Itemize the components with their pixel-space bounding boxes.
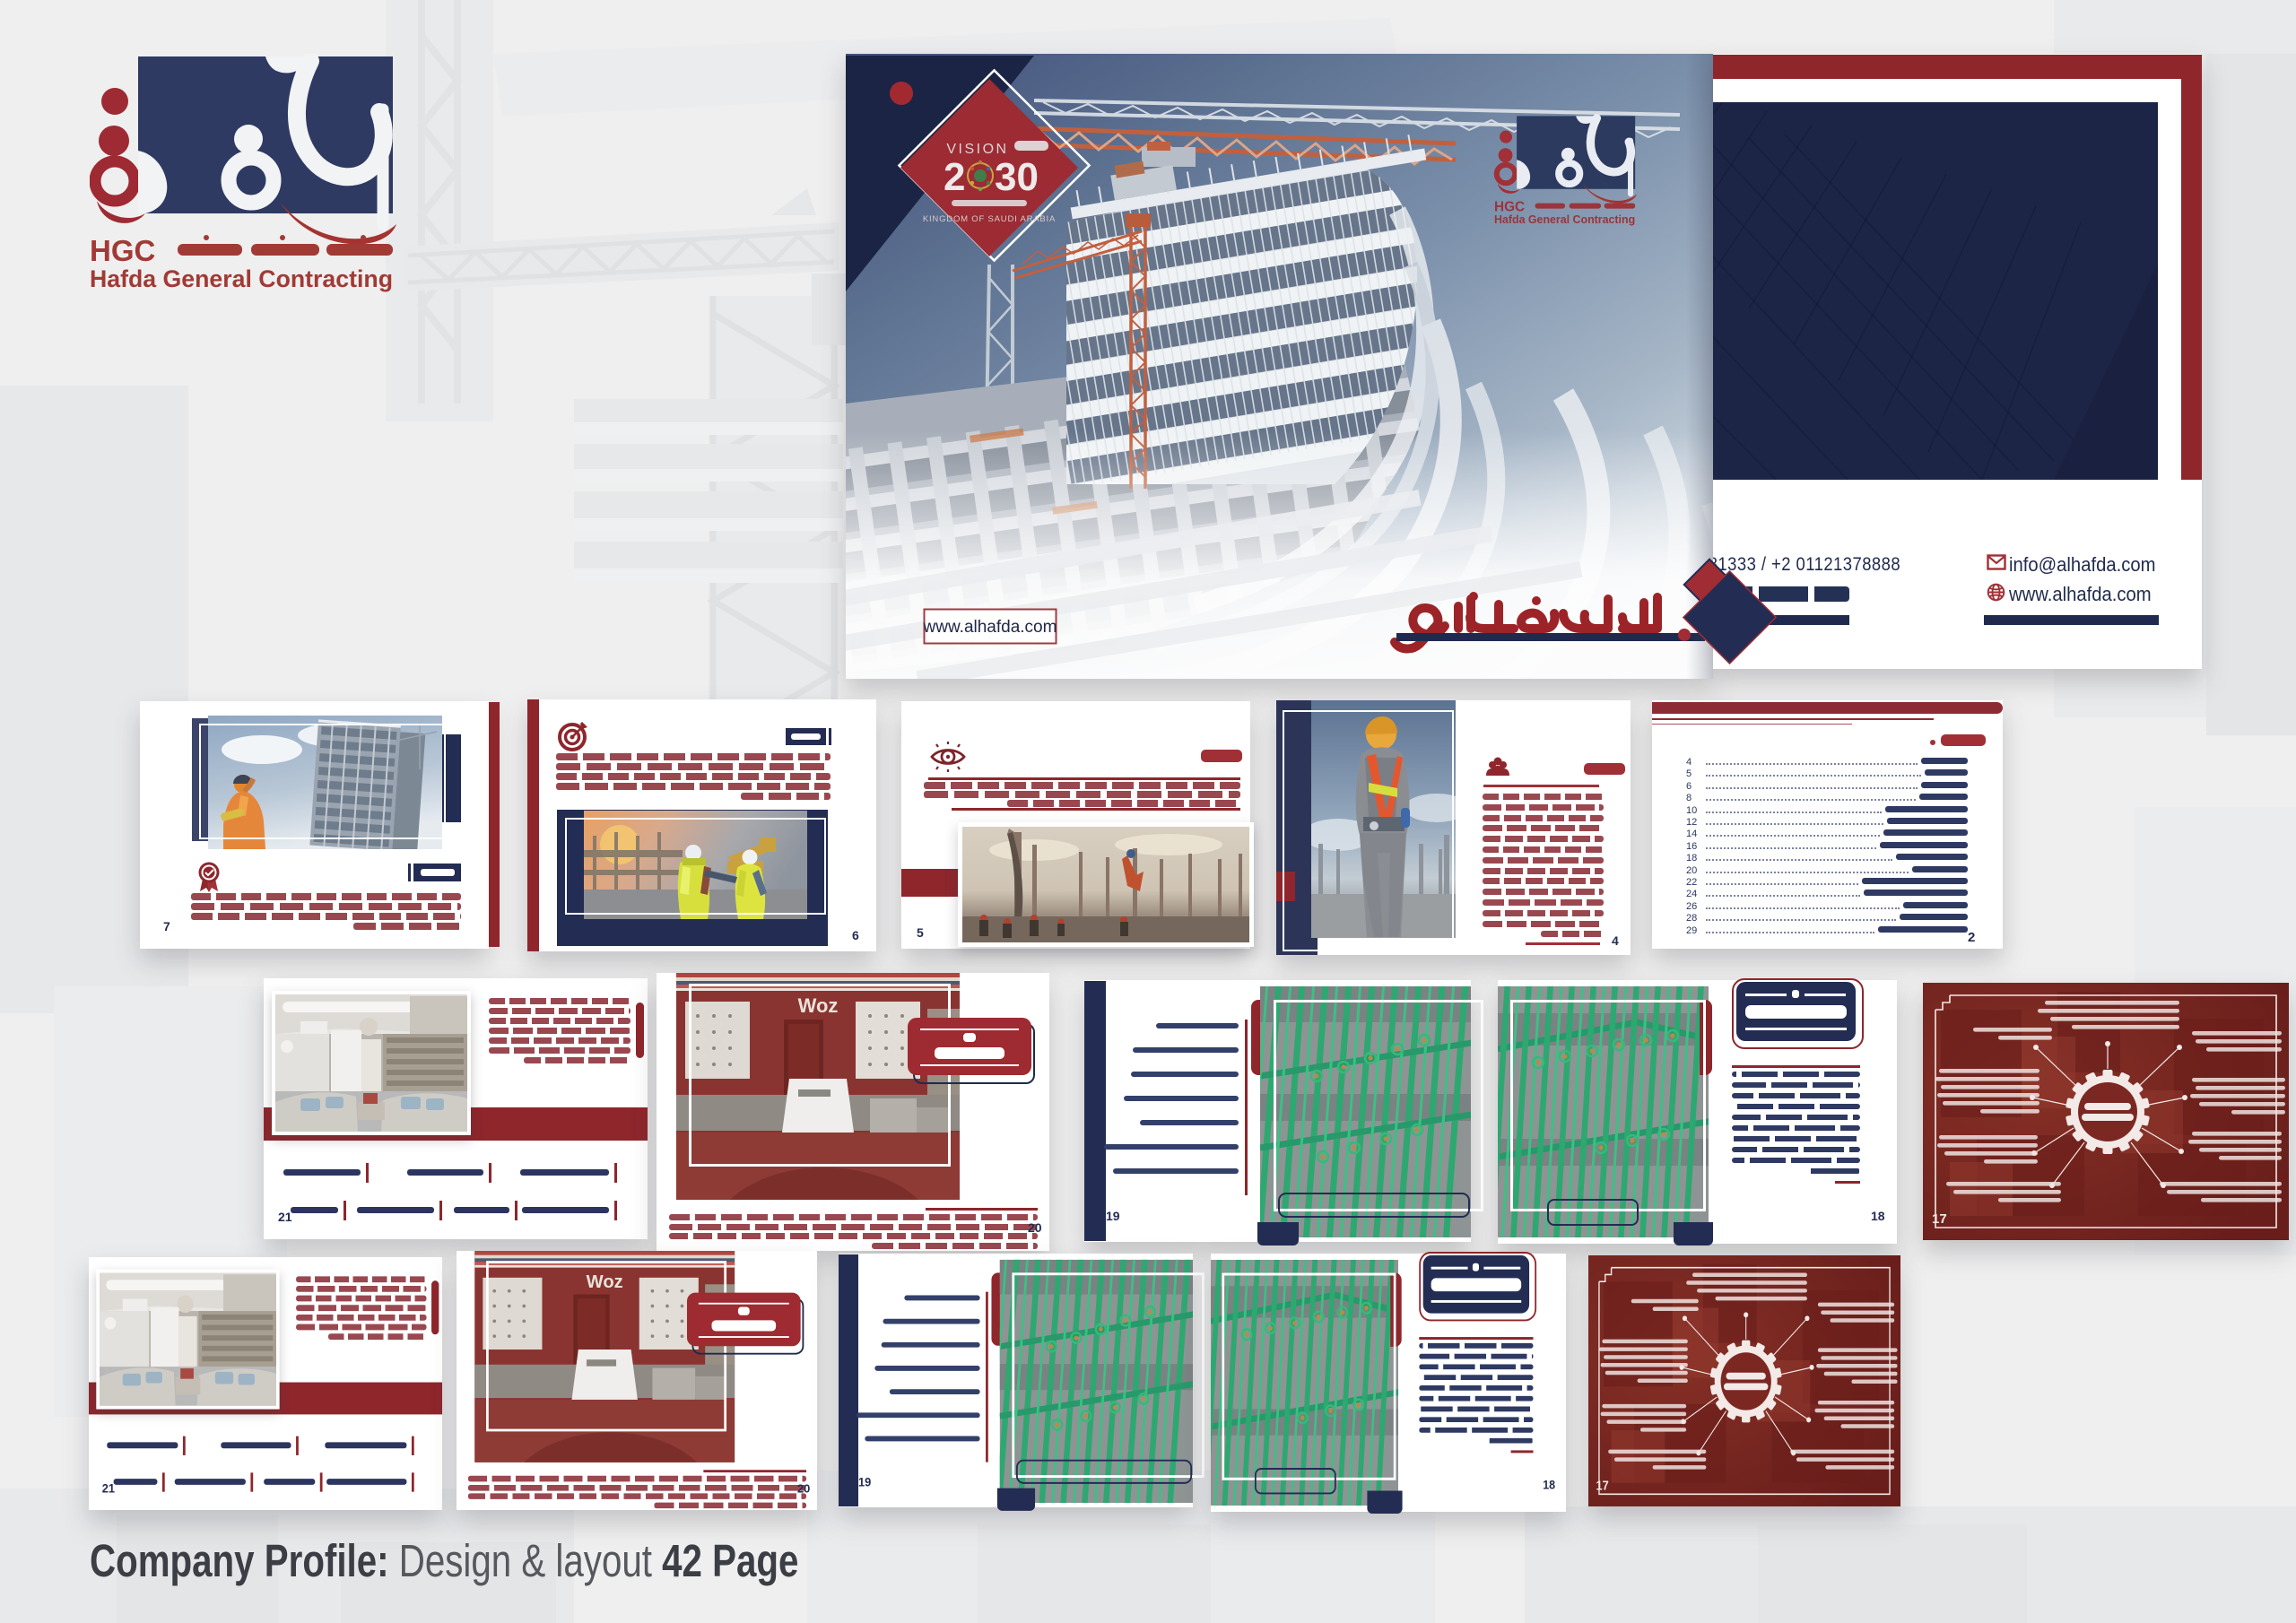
svg-text:17: 17 — [1932, 1211, 1947, 1227]
svg-text:2: 2 — [944, 155, 965, 199]
svg-text:Hafda General Contracting: Hafda General Contracting — [1494, 213, 1635, 226]
svg-text:HGC: HGC — [90, 234, 155, 267]
svg-text:HGC: HGC — [1494, 199, 1525, 214]
svg-text:www.alhafda.com: www.alhafda.com — [923, 618, 1057, 637]
svg-text:KINGDOM OF SAUDI ARABIA: KINGDOM OF SAUDI ARABIA — [923, 214, 1056, 224]
svg-text:17: 17 — [1596, 1479, 1610, 1493]
svg-text:30: 30 — [995, 155, 1039, 199]
svg-text:Hafda General Contracting: Hafda General Contracting — [90, 265, 393, 292]
